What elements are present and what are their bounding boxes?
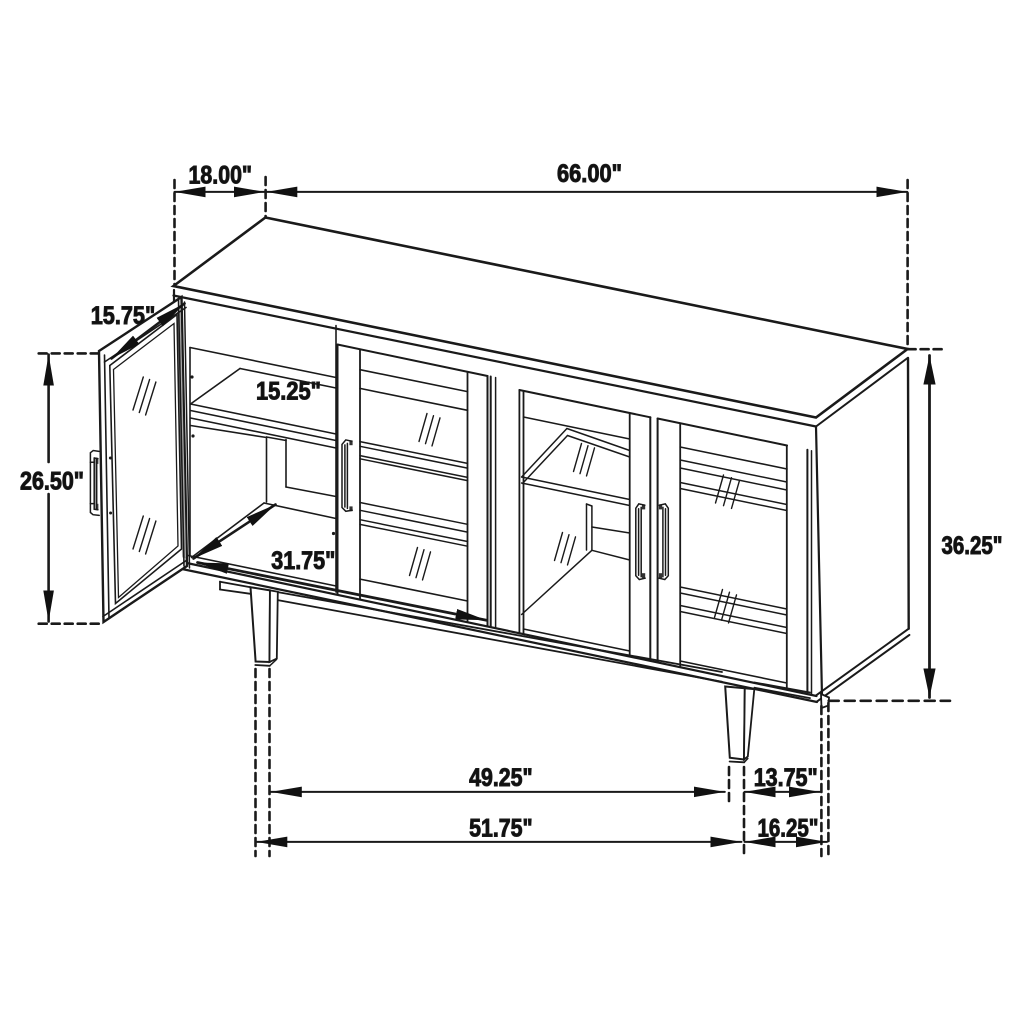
svg-text:51.75": 51.75" (469, 815, 533, 843)
svg-text:66.00": 66.00" (557, 160, 622, 188)
svg-text:16.25": 16.25" (758, 815, 819, 843)
svg-text:13.75": 13.75" (754, 764, 818, 792)
svg-text:49.25": 49.25" (469, 764, 533, 792)
svg-text:36.25": 36.25" (942, 532, 1003, 560)
svg-text:15.75": 15.75" (91, 302, 156, 330)
svg-text:26.50": 26.50" (20, 468, 84, 496)
svg-text:15.25": 15.25" (256, 378, 321, 406)
svg-text:18.00": 18.00" (189, 162, 253, 190)
svg-text:31.75": 31.75" (271, 547, 335, 575)
